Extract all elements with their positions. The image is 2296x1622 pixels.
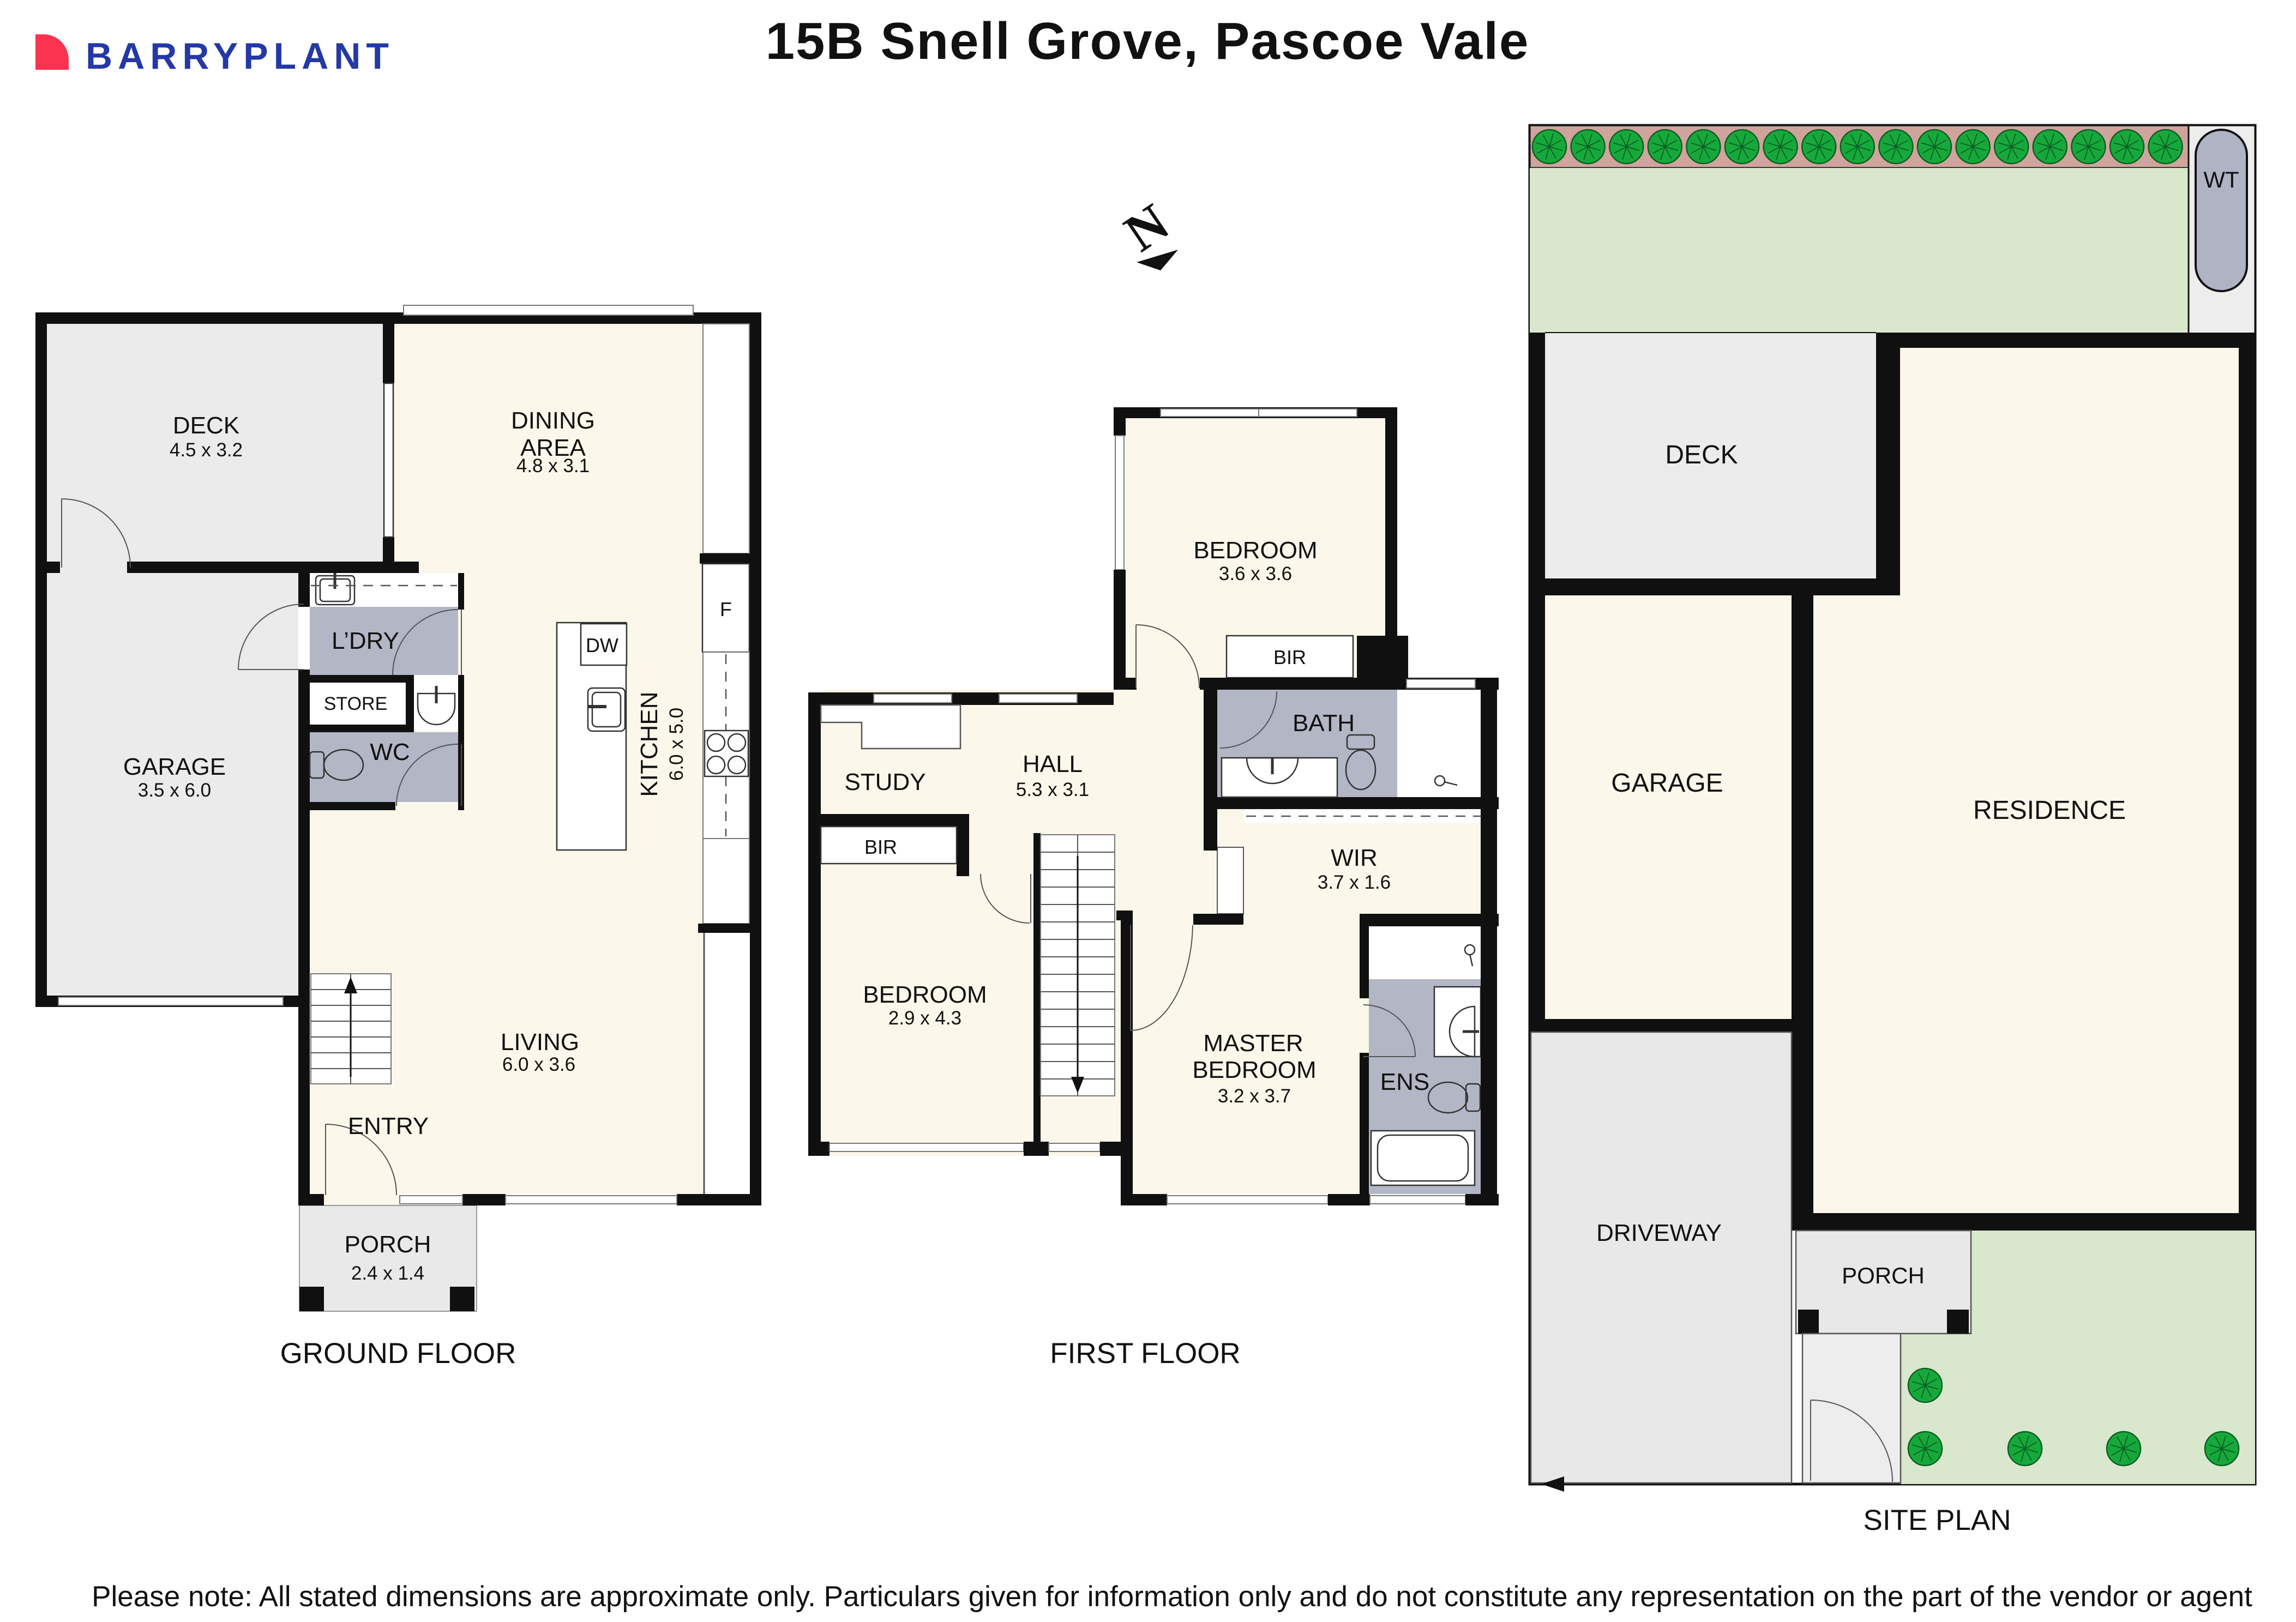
svg-text:3.7 x 1.6: 3.7 x 1.6 [1318,872,1391,893]
svg-text:3.2 x 3.7: 3.2 x 3.7 [1218,1086,1291,1107]
svg-text:PORCH: PORCH [345,1231,431,1258]
svg-text:3.6 x 3.6: 3.6 x 3.6 [1219,563,1292,584]
svg-text:BEDROOM: BEDROOM [1193,537,1317,564]
svg-text:FIRST FLOOR: FIRST FLOOR [1050,1337,1240,1370]
svg-text:WIR: WIR [1331,845,1378,871]
svg-text:3.5 x 6.0: 3.5 x 6.0 [138,780,211,801]
svg-text:HALL: HALL [1023,751,1083,777]
svg-text:BIR: BIR [864,836,897,858]
svg-text:4.8 x 3.1: 4.8 x 3.1 [516,455,590,477]
svg-text:STUDY: STUDY [844,769,925,795]
svg-text:GARAGE: GARAGE [123,753,226,780]
svg-text:F: F [720,598,732,620]
svg-text:STORE: STORE [324,694,388,714]
svg-text:L’DRY: L’DRY [332,628,399,654]
svg-text:BEDROOM: BEDROOM [1192,1057,1316,1083]
svg-text:MASTER: MASTER [1203,1030,1303,1057]
svg-text:BIR: BIR [1273,646,1306,668]
svg-text:DINING: DINING [511,407,595,434]
svg-text:PORCH: PORCH [1842,1263,1925,1288]
svg-text:KITCHEN: KITCHEN [636,691,663,797]
svg-text:BARRYPLANT: BARRYPLANT [86,35,394,77]
svg-text:2.9 x 4.3: 2.9 x 4.3 [888,1008,961,1029]
svg-text:6.0 x 5.0: 6.0 x 5.0 [666,708,687,781]
svg-text:15B Snell Grove, Pascoe Vale: 15B Snell Grove, Pascoe Vale [766,12,1530,70]
svg-text:6.0 x 3.6: 6.0 x 3.6 [502,1054,575,1075]
svg-text:DECK: DECK [1665,441,1738,469]
svg-text:DRIVEWAY: DRIVEWAY [1596,1220,1722,1246]
svg-text:DW: DW [586,634,618,656]
svg-text:GARAGE: GARAGE [1611,769,1723,798]
svg-text:5.3 x 3.1: 5.3 x 3.1 [1016,779,1089,800]
svg-text:BATH: BATH [1293,710,1355,737]
svg-text:2.4 x 1.4: 2.4 x 1.4 [351,1263,424,1284]
svg-text:SITE PLAN: SITE PLAN [1864,1504,2011,1536]
svg-text:GROUND FLOOR: GROUND FLOOR [280,1337,516,1370]
svg-text:ENS: ENS [1380,1069,1429,1095]
svg-text:4.5 x 3.2: 4.5 x 3.2 [170,439,243,461]
svg-text:RESIDENCE: RESIDENCE [1973,796,2126,825]
svg-text:ENTRY: ENTRY [348,1113,429,1139]
svg-text:LIVING: LIVING [501,1029,579,1056]
svg-text:Please note: All stated dimens: Please note: All stated dimensions are a… [92,1581,2252,1613]
svg-text:BEDROOM: BEDROOM [863,981,987,1008]
svg-text:WT: WT [2203,167,2239,192]
svg-text:DECK: DECK [173,412,239,439]
svg-text:WC: WC [370,739,410,765]
